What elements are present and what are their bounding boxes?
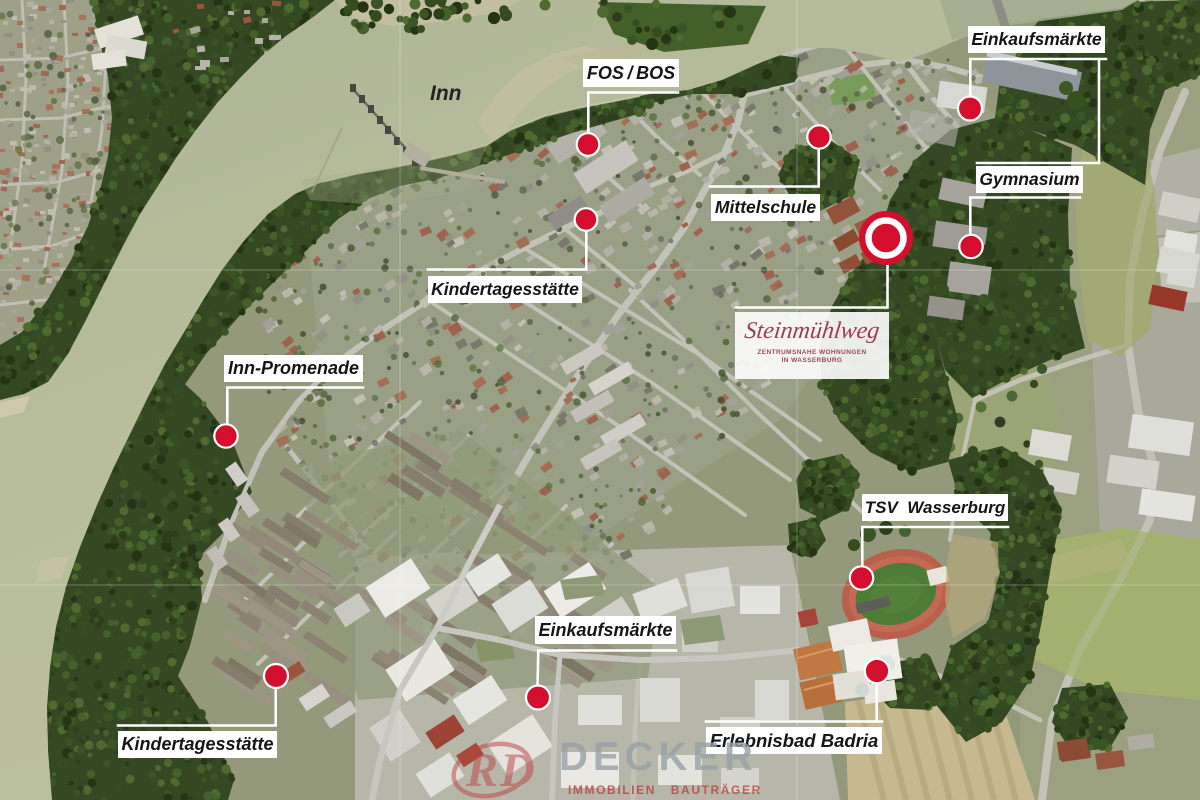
svg-text:D: D bbox=[499, 744, 535, 797]
svg-text:R: R bbox=[465, 744, 498, 797]
